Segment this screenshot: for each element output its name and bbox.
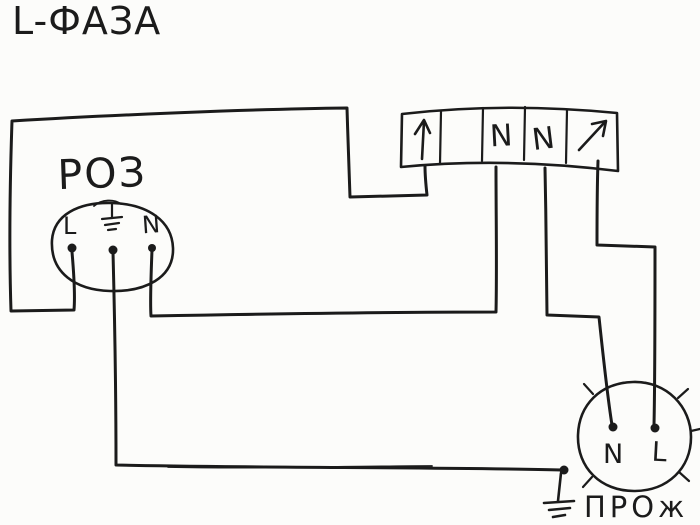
floodlight-terminal-dot bbox=[609, 423, 618, 432]
terminal-block-divider bbox=[482, 108, 483, 161]
floodlight-terminal-n-label: N bbox=[603, 439, 623, 470]
socket-terminal-dot bbox=[109, 246, 118, 255]
socket-terminal-n-label: N bbox=[141, 210, 161, 239]
socket-terminal-dot bbox=[68, 244, 77, 253]
terminal-block-divider bbox=[524, 107, 525, 160]
floodlight-terminal-l-label: L bbox=[651, 437, 668, 469]
floodlight-outline bbox=[578, 382, 691, 491]
terminal-n1-label: N bbox=[489, 118, 513, 154]
socket-ground-icon bbox=[102, 204, 122, 230]
terminal-block-divider bbox=[440, 111, 441, 164]
floodlight-terminal-dot bbox=[651, 424, 660, 433]
earth-ground-icon bbox=[544, 473, 574, 517]
up-arrow-icon bbox=[415, 120, 430, 159]
socket-terminal-dot bbox=[148, 244, 156, 252]
diagonal-arrow-icon bbox=[579, 121, 606, 150]
wiring-diagram: L-ФАЗА N N bbox=[0, 0, 700, 525]
phase-label: L-ФАЗА bbox=[12, 0, 161, 43]
neutral-wire bbox=[151, 167, 497, 316]
socket-label: РОЗ bbox=[57, 148, 148, 199]
floodlight-neutral-wire bbox=[545, 168, 612, 425]
floodlight-label: ПРОж bbox=[584, 490, 688, 524]
terminal-block-divider bbox=[566, 110, 567, 163]
floodlight-rays bbox=[583, 384, 700, 487]
terminal-block: N N bbox=[401, 107, 618, 171]
socket-terminal-l-label: L bbox=[63, 212, 77, 240]
terminal-n2-label: N bbox=[530, 121, 557, 158]
ground-wire bbox=[113, 252, 562, 470]
floodlight: N L ПРОж bbox=[578, 382, 700, 524]
